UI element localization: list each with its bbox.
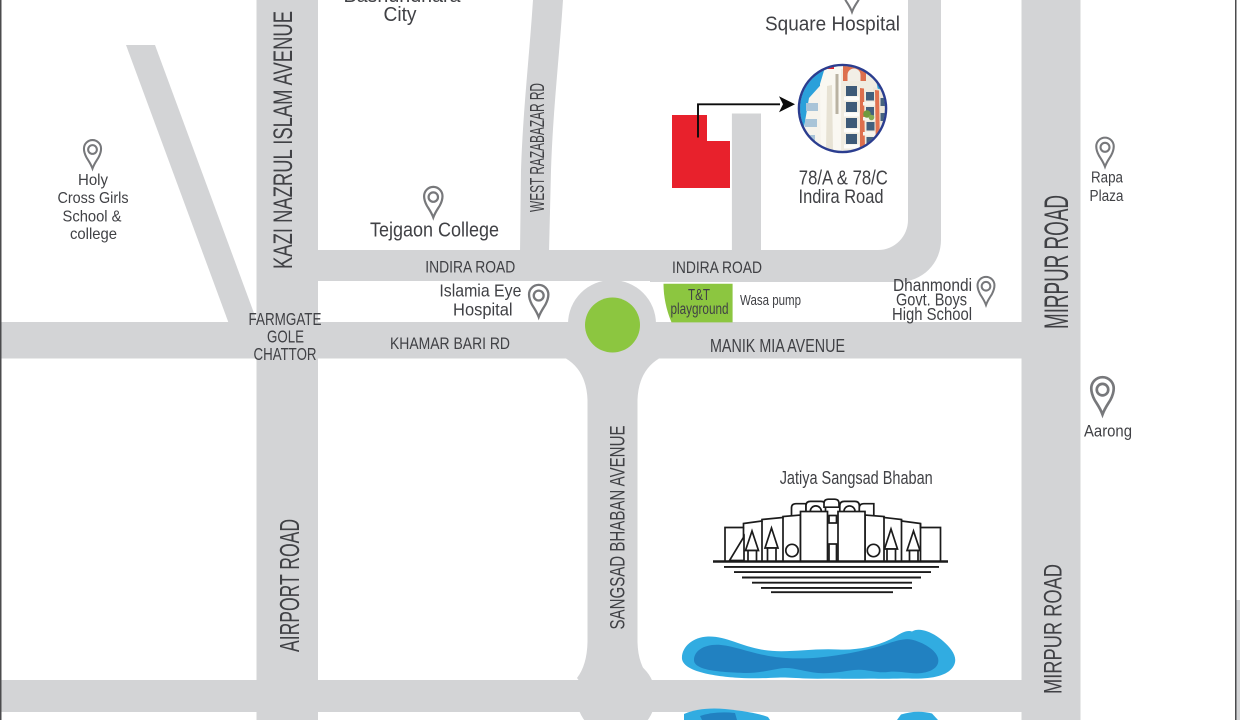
svg-text:KAZI NAZRUL ISLAM AVENUE: KAZI NAZRUL ISLAM AVENUE <box>268 11 298 269</box>
svg-text:MIRPUR ROAD: MIRPUR ROAD <box>1040 564 1068 694</box>
svg-text:college: college <box>70 226 117 243</box>
svg-text:City: City <box>384 4 417 26</box>
svg-text:SANGSAD BHABAN AVENUE: SANGSAD BHABAN AVENUE <box>607 426 630 630</box>
svg-text:playground: playground <box>671 301 729 318</box>
svg-text:CHATTOR: CHATTOR <box>254 344 317 364</box>
svg-text:Square Hospital: Square Hospital <box>765 13 900 36</box>
svg-text:Islamia Eye: Islamia Eye <box>439 281 521 301</box>
svg-text:KHAMAR BARI RD: KHAMAR BARI RD <box>390 335 510 353</box>
svg-text:Indira Road: Indira Road <box>799 186 884 208</box>
svg-text:Hospital: Hospital <box>453 300 513 320</box>
svg-text:INDIRA ROAD: INDIRA ROAD <box>425 258 515 277</box>
svg-text:MANIK MIA AVENUE: MANIK MIA AVENUE <box>710 336 845 356</box>
svg-text:Holy: Holy <box>78 172 108 189</box>
svg-text:Rapa: Rapa <box>1091 170 1123 187</box>
svg-text:Tejgaon College: Tejgaon College <box>370 220 499 242</box>
svg-text:WEST RAZABAZAR RD: WEST RAZABAZAR RD <box>527 83 549 212</box>
svg-text:High School: High School <box>892 304 972 324</box>
svg-text:Plaza: Plaza <box>1090 188 1124 205</box>
svg-text:INDIRA ROAD: INDIRA ROAD <box>672 258 762 277</box>
svg-text:Wasa pump: Wasa pump <box>740 292 801 309</box>
svg-text:AIRPORT ROAD: AIRPORT ROAD <box>274 519 305 652</box>
svg-text:Cross Girls: Cross Girls <box>58 190 129 207</box>
svg-text:Jatiya Sangsad Bhaban: Jatiya Sangsad Bhaban <box>780 467 933 488</box>
svg-text:School &: School & <box>63 209 122 226</box>
svg-text:MIRPUR ROAD: MIRPUR ROAD <box>1038 195 1076 329</box>
svg-text:Aarong: Aarong <box>1084 423 1132 441</box>
